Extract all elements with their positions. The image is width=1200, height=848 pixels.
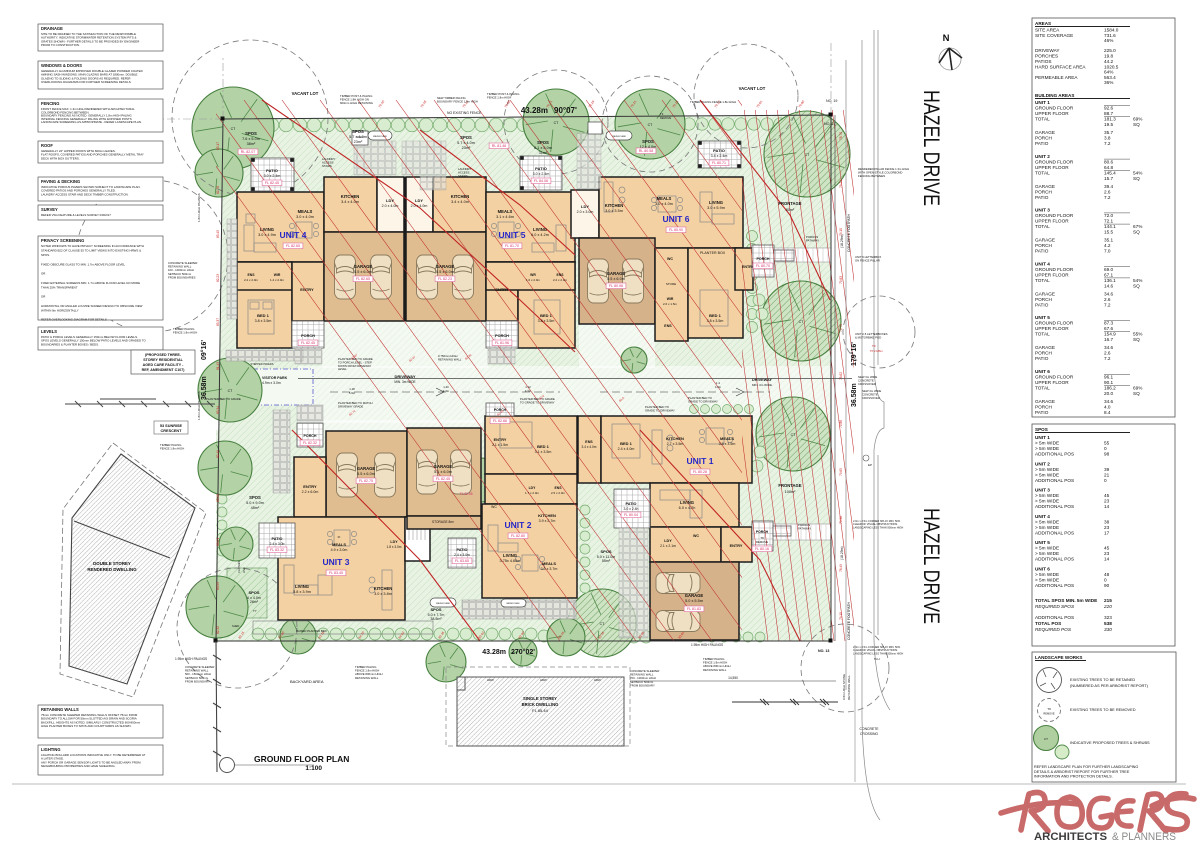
svg-text:ENS: ENS	[557, 273, 565, 277]
svg-text:FROM BOUNDARIES: FROM BOUNDARIES	[168, 275, 196, 279]
svg-text:14.6: 14.6	[1104, 283, 1114, 288]
svg-text:GARAGE: GARAGE	[357, 466, 376, 471]
svg-text:UNIT 5: UNIT 5	[499, 230, 526, 240]
svg-text:54%: 54%	[1133, 278, 1142, 283]
svg-text:215: 215	[1104, 598, 1112, 603]
svg-text:1.4 x 2.0m: 1.4 x 2.0m	[270, 278, 285, 282]
svg-text:FL 81.96: FL 81.96	[495, 341, 509, 345]
svg-text:3.8 x 3.5m: 3.8 x 3.5m	[707, 319, 724, 323]
svg-text:GROUND FLOOR PLAN: GROUND FLOOR PLAN	[254, 754, 349, 764]
svg-text:PATIO: PATIO	[1035, 410, 1049, 415]
svg-text:STAIRS: STAIRS	[458, 174, 468, 178]
svg-text:TOTAL: TOTAL	[1035, 386, 1050, 391]
svg-text:NO EXISTING FENCE: NO EXISTING FENCE	[447, 111, 482, 115]
svg-text:FRONTAGE: FRONTAGE	[778, 201, 801, 206]
svg-text:DRIVEWAY GRADE: DRIVEWAY GRADE	[338, 404, 363, 408]
svg-text:220: 220	[1103, 604, 1112, 609]
svg-text:UPPER FLOOR: UPPER FLOOR	[1035, 111, 1069, 116]
svg-text:UPPER FLOOR: UPPER FLOOR	[1035, 272, 1069, 277]
svg-text:HRW: HRW	[540, 678, 547, 682]
svg-text:WATER TANK: WATER TANK	[612, 135, 626, 138]
svg-text:79.65: 79.65	[839, 468, 843, 476]
svg-text:UNIT 5: UNIT 5	[1035, 540, 1050, 545]
svg-text:STORE: STORE	[666, 282, 676, 286]
svg-text:39.4: 39.4	[1104, 184, 1114, 189]
svg-text:HRW: HRW	[487, 678, 494, 682]
svg-text:92.6: 92.6	[1104, 106, 1114, 111]
svg-text:3.0 x 3.7m: 3.0 x 3.7m	[541, 567, 558, 571]
svg-text:(NUMBERED AS PER ARBORIST REPO: (NUMBERED AS PER ARBORIST REPORT)	[1070, 683, 1149, 688]
svg-text:PATIO: PATIO	[1035, 141, 1049, 146]
svg-text:69%: 69%	[1133, 117, 1142, 122]
svg-text:1.7 x 2.0m: 1.7 x 2.0m	[525, 491, 540, 495]
svg-text:ENTRY: ENTRY	[495, 287, 509, 292]
svg-text:BUILDING AREAS: BUILDING AREAS	[1035, 93, 1074, 98]
svg-text:19.5: 19.5	[1104, 122, 1114, 127]
svg-text:SINGLE STOREY: SINGLE STOREY	[523, 696, 557, 701]
svg-text:NO. 13: NO. 13	[818, 649, 829, 653]
svg-text:N: N	[943, 33, 950, 44]
svg-text:GROUND FLOOR: GROUND FLOOR	[1035, 321, 1074, 326]
svg-text:SITE AREA: SITE AREA	[1035, 28, 1060, 33]
svg-text:4.3m: 4.3m	[525, 389, 532, 393]
svg-text:PATIOS: PATIOS	[1035, 59, 1052, 64]
svg-text:FENCING BETWEEN: FENCING BETWEEN	[858, 174, 885, 178]
svg-text:SPOS: SPOS	[642, 139, 654, 144]
svg-text:PATIO: PATIO	[1035, 302, 1049, 307]
svg-text:ARCHITECTS: ARCHITECTS	[1034, 831, 1107, 843]
svg-text:GARAGE: GARAGE	[434, 464, 453, 469]
svg-text:ADDITIONAL POS: ADDITIONAL POS	[1035, 530, 1074, 535]
svg-text:NO. 17: NO. 17	[824, 122, 835, 126]
svg-text:GROUND FLOOR: GROUND FLOOR	[1035, 213, 1074, 218]
svg-text:MEALS: MEALS	[332, 542, 346, 547]
svg-text:81.43: 81.43	[216, 362, 220, 370]
svg-text:> 5m WIDE: > 5m WIDE	[1035, 572, 1059, 577]
svg-text:HIGH PLANTER BOXES TO SPOS AND: HIGH PLANTER BOXES TO SPOS AND COURTYARD…	[41, 724, 132, 728]
svg-text:1.8 x 3.0m: 1.8 x 3.0m	[387, 545, 402, 549]
svg-text:23: 23	[1104, 525, 1110, 530]
svg-text:FL 82.65: FL 82.65	[286, 244, 300, 248]
svg-text:PATIO: PATIO	[271, 537, 282, 541]
svg-text:38m²: 38m²	[247, 142, 256, 146]
svg-text:THAN 25% TRANSPARENT: THAN 25% TRANSPARENT	[41, 285, 78, 289]
svg-text:LDY: LDY	[529, 486, 537, 490]
svg-text:GARAGE: GARAGE	[1035, 291, 1055, 296]
svg-text:HARD SURFACE AREA: HARD SURFACE AREA	[1035, 65, 1086, 70]
svg-text:GROUND FLOOR: GROUND FLOOR	[1035, 375, 1074, 380]
svg-text:SPOS: SPOS	[248, 590, 259, 595]
svg-text:98: 98	[1104, 452, 1110, 457]
svg-text:> 5m WIDE: > 5m WIDE	[1035, 446, 1059, 451]
svg-text:LINE: LINE	[242, 567, 246, 573]
svg-text:CLOTHES: CLOTHES	[237, 560, 241, 573]
svg-text:GARAGE: GARAGE	[1035, 130, 1055, 135]
svg-text:FRONTAGE: FRONTAGE	[778, 483, 801, 488]
svg-text:RL 82.07: RL 82.07	[241, 150, 255, 154]
svg-text:VACANT LOT: VACANT LOT	[292, 91, 319, 96]
svg-text:REQUIRED SPOS: REQUIRED SPOS	[1035, 604, 1075, 609]
svg-text:BED 1: BED 1	[540, 313, 553, 318]
svg-text:PORCH: PORCH	[301, 334, 315, 338]
svg-text:MEALS: MEALS	[498, 209, 513, 214]
svg-text:FL 81.83: FL 81.83	[687, 607, 701, 611]
svg-text:SPOS: SPOS	[352, 129, 364, 134]
svg-text:SURVEY: SURVEY	[41, 207, 58, 212]
svg-text:KITCHEN: KITCHEN	[666, 436, 684, 441]
svg-text:79.30: 79.30	[839, 516, 843, 524]
svg-text:OR: OR	[41, 272, 45, 276]
svg-text:6.1 x 5.0m: 6.1 x 5.0m	[534, 146, 552, 150]
svg-text:SQ: SQ	[1133, 122, 1140, 127]
svg-text:55m²: 55m²	[602, 559, 611, 563]
svg-text:14,550: 14,550	[728, 676, 738, 680]
svg-text:UNIT 2: UNIT 2	[1035, 461, 1050, 466]
svg-text:79.15: 79.15	[839, 612, 843, 620]
svg-text:4.3m: 4.3m	[443, 389, 450, 393]
svg-text:LEVELS: LEVELS	[41, 329, 57, 334]
svg-text:5.0 x 9.0m: 5.0 x 9.0m	[246, 501, 264, 505]
svg-text:79.21: 79.21	[839, 180, 843, 188]
svg-text:DETAILS & ARBORIST REPORT FOR: DETAILS & ARBORIST REPORT FOR FURTHER TR…	[1034, 770, 1130, 774]
svg-text:15.5: 15.5	[1104, 230, 1114, 235]
svg-text:UNIT 5: UNIT 5	[1035, 315, 1050, 320]
svg-text:ENTRY: ENTRY	[303, 484, 317, 489]
svg-text:5.9m: 5.9m	[349, 391, 356, 395]
svg-text:2.1 x 2.1m: 2.1 x 2.1m	[660, 544, 676, 548]
svg-text:RAISED PLANTER BED: RAISED PLANTER BED	[296, 629, 327, 633]
svg-text:2.4 x 4.0m: 2.4 x 4.0m	[618, 447, 635, 451]
svg-text:GARAGE: GARAGE	[436, 264, 455, 269]
svg-text:UNIT 3: UNIT 3	[1035, 208, 1050, 213]
svg-text:> 5m WIDE: > 5m WIDE	[1035, 551, 1059, 556]
svg-text:REMOVE: REMOVE	[756, 540, 768, 544]
svg-text:INFORMATION AND PROTECTION DET: INFORMATION AND PROTECTION DETAILS.	[1034, 775, 1113, 779]
svg-text:83.34: 83.34	[216, 406, 220, 414]
svg-text:1.8m HIGH PALINGS: 1.8m HIGH PALINGS	[197, 193, 201, 222]
svg-text:53 SUNRISE: 53 SUNRISE	[160, 424, 183, 428]
svg-text:SHED: SHED	[232, 624, 239, 628]
svg-text:TOTAL: TOTAL	[1035, 332, 1050, 337]
svg-text:SQ: SQ	[1133, 391, 1140, 396]
svg-text:2.4 x 3.0b: 2.4 x 3.0b	[270, 542, 285, 546]
svg-text:PRIVACY SCREENING: PRIVACY SCREENING	[41, 238, 84, 243]
svg-text:3.4 x 2.4m: 3.4 x 2.4m	[711, 154, 728, 158]
svg-text:PORCH: PORCH	[1035, 136, 1052, 141]
svg-text:LDY: LDY	[581, 204, 589, 209]
svg-text:FIXED OBSCURE GLASS TO MIN. 1.: FIXED OBSCURE GLASS TO MIN. 1.7m ABOVE F…	[41, 262, 125, 266]
svg-text:ENS: ENS	[555, 486, 563, 490]
svg-text:UNIT 4: UNIT 4	[1035, 514, 1050, 519]
svg-text:55%: 55%	[1133, 332, 1142, 337]
svg-text:31m²: 31m²	[539, 151, 548, 155]
svg-text:67%: 67%	[1133, 224, 1142, 229]
svg-text:4.0: 4.0	[1104, 405, 1111, 410]
svg-text:72.0: 72.0	[1104, 213, 1114, 218]
svg-text:LDY: LDY	[386, 198, 394, 203]
svg-text:FL 80.04: FL 80.04	[624, 513, 638, 517]
svg-text:67.1: 67.1	[1104, 272, 1114, 277]
svg-text:83.90: 83.90	[216, 494, 220, 502]
svg-text:PORCH: PORCH	[1035, 351, 1052, 356]
svg-text:48: 48	[1104, 572, 1110, 577]
svg-text:ADDITIONAL POS: ADDITIONAL POS	[1035, 478, 1074, 483]
svg-text:WINDOWS & DOORS: WINDOWS & DOORS	[41, 63, 82, 68]
svg-text:83.37: 83.37	[216, 318, 220, 326]
svg-text:83.17: 83.17	[216, 142, 220, 150]
svg-text:BOUNDARY FENCE 1.8m HIGH: BOUNDARY FENCE 1.8m HIGH	[437, 99, 478, 103]
svg-text:LDY: LDY	[390, 540, 398, 544]
svg-text:2.0 x 4.0m: 2.0 x 4.0m	[382, 204, 399, 208]
svg-text:KITCHEN: KITCHEN	[341, 194, 360, 199]
svg-text:36.58m: 36.58m	[851, 383, 858, 407]
svg-text:BED 1: BED 1	[537, 444, 550, 449]
svg-text:PATIO: PATIO	[456, 548, 467, 552]
svg-text:SQ: SQ	[1133, 176, 1140, 181]
svg-text:CROSSOVER: CROSSOVER	[862, 396, 880, 400]
svg-text:2.6: 2.6	[1104, 351, 1111, 356]
svg-text:19.8: 19.8	[1104, 54, 1114, 59]
svg-text:PORCH: PORCH	[756, 530, 769, 534]
svg-text:AREAS: AREAS	[1035, 21, 1051, 26]
svg-text:CT: CT	[1044, 737, 1048, 741]
svg-text:5.5 x 6.0m: 5.5 x 6.0m	[354, 270, 372, 274]
svg-text:2.6 x 1.5m: 2.6 x 1.5m	[663, 302, 678, 306]
svg-text:55: 55	[1104, 441, 1110, 446]
svg-text:5.5 x 6.0m: 5.5 x 6.0m	[357, 472, 375, 476]
svg-text:4.2: 4.2	[1104, 243, 1111, 248]
svg-text:ENTRY: ENTRY	[494, 438, 507, 442]
svg-text:2.6: 2.6	[1104, 297, 1111, 302]
svg-text:2.7 x 3.5m: 2.7 x 3.5m	[667, 442, 684, 446]
svg-text:82.32: 82.32	[216, 626, 220, 634]
svg-text:FL 80.71: FL 80.71	[712, 161, 726, 165]
svg-text:TOTAL SPOS MIN. 5m WIDE: TOTAL SPOS MIN. 5m WIDE	[1035, 598, 1097, 603]
svg-text:> 5m WIDE: > 5m WIDE	[1035, 467, 1059, 472]
svg-text:2.0 x 3.0m: 2.0 x 3.0m	[577, 210, 594, 214]
svg-text:RL 81.46: RL 81.46	[492, 144, 506, 148]
svg-text:BED 1: BED 1	[257, 313, 270, 318]
svg-text:(18.29m): (18.29m)	[840, 234, 844, 248]
svg-text:WC: WC	[491, 505, 497, 509]
svg-text:NOTED WINDOWS TO HAVE PRIVACY: NOTED WINDOWS TO HAVE PRIVACY SCREENING …	[41, 244, 144, 248]
svg-text:3.75x 4.65m: 3.75x 4.65m	[500, 559, 521, 563]
svg-text:3.0 x 5.9m: 3.0 x 5.9m	[707, 206, 725, 210]
svg-text:KITCHEN: KITCHEN	[605, 203, 624, 208]
svg-text:FIXED EXTERNAL SCREENS MIN.: FIXED EXTERNAL SCREENS MIN. 1.7m ABOVE F…	[41, 281, 140, 285]
svg-text:44.2: 44.2	[1104, 59, 1114, 64]
svg-text:UNIT 4: UNIT 4	[280, 230, 307, 240]
svg-text:5.1 x 6.0m: 5.1 x 6.0m	[434, 470, 452, 474]
svg-text:GARAGE: GARAGE	[1035, 184, 1055, 189]
svg-text:7.2: 7.2	[1104, 195, 1111, 200]
svg-text:REFER LANDSCAPE PLAN FOR FURTH: REFER LANDSCAPE PLAN FOR FURTHER LANDSCA…	[1034, 765, 1138, 769]
svg-text:UNIT 4: UNIT 4	[1035, 261, 1050, 266]
svg-text:KITCHEN: KITCHEN	[451, 194, 470, 199]
svg-text:GROUND FLOOR: GROUND FLOOR	[1035, 106, 1074, 111]
svg-text:TOTAL: TOTAL	[1035, 170, 1050, 175]
svg-text:1.8m HIGH PALINGS: 1.8m HIGH PALINGS	[197, 391, 201, 420]
svg-text:> 5m WIDE: > 5m WIDE	[1035, 519, 1059, 524]
svg-text:FENCE 1.8m HIGH: FENCE 1.8m HIGH	[487, 95, 511, 99]
svg-text:5.7 x 4.0m: 5.7 x 4.0m	[457, 141, 475, 145]
svg-text:WATER TANK: WATER TANK	[506, 602, 520, 605]
svg-text:UPPER FLOOR: UPPER FLOOR	[1035, 219, 1069, 224]
svg-text:> 5m WIDE: > 5m WIDE	[1035, 546, 1059, 551]
svg-text:FL 84.06: FL 84.06	[534, 179, 548, 183]
svg-text:144.1: 144.1	[1104, 224, 1116, 229]
svg-text:3.0 x 3.5m: 3.0 x 3.5m	[605, 209, 623, 213]
svg-text:3.0 x 4.0m: 3.0 x 4.0m	[655, 202, 673, 206]
svg-text:67.6: 67.6	[1104, 326, 1114, 331]
svg-text:3.0 x 2.4h: 3.0 x 2.4h	[624, 507, 639, 511]
svg-text:GARAGE: GARAGE	[607, 271, 626, 276]
svg-text:LDY: LDY	[415, 198, 423, 203]
svg-text:96.1: 96.1	[1104, 375, 1114, 380]
svg-text:UNIT 1: UNIT 1	[1035, 435, 1050, 440]
svg-text:14: 14	[1104, 504, 1110, 509]
svg-text:SITE COVERAGE: SITE COVERAGE	[1035, 33, 1073, 38]
svg-text:43.28m: 43.28m	[482, 649, 506, 656]
svg-text:3.9 x 2.7m: 3.9 x 2.7m	[539, 519, 556, 523]
svg-text:90.1: 90.1	[1104, 380, 1114, 385]
svg-text:RETAINING WALL: RETAINING WALL	[703, 668, 727, 672]
svg-text:ENS: ENS	[248, 273, 256, 277]
svg-text:SPOS: SPOS	[600, 549, 611, 554]
svg-text:82.49: 82.49	[216, 450, 220, 458]
svg-text:TOTAL: TOTAL	[1035, 278, 1050, 283]
svg-text:0: 0	[1104, 446, 1107, 451]
svg-text:UPPER FLOOR: UPPER FLOOR	[1035, 326, 1069, 331]
svg-text:REMOVE: REMOVE	[1043, 712, 1055, 716]
svg-text:3.1 x 4.6m: 3.1 x 4.6m	[496, 215, 514, 219]
svg-text:64%: 64%	[1104, 70, 1113, 75]
svg-text:WC: WC	[693, 534, 699, 538]
svg-text:T#: T#	[1047, 707, 1051, 711]
svg-text:HAZEL DRIVE: HAZEL DRIVE	[919, 508, 944, 624]
svg-text:REQUIRED POS: REQUIRED POS	[1035, 627, 1072, 632]
svg-text:1584.0: 1584.0	[1104, 28, 1119, 33]
svg-text:600mm HIGH RETAINING: 600mm HIGH RETAINING	[340, 101, 373, 105]
svg-text:3.8 x 3.5m: 3.8 x 3.5m	[255, 319, 272, 323]
svg-text:82.23: 82.23	[216, 274, 220, 282]
svg-text:FL 82.58: FL 82.58	[460, 492, 473, 496]
svg-text:UPPER FLOOR: UPPER FLOOR	[1035, 165, 1069, 170]
svg-text:7.2: 7.2	[1104, 356, 1111, 361]
svg-text:LANDSCAPING LESS THAN 900mm HI: LANDSCAPING LESS THAN 900mm HIGH	[853, 651, 903, 655]
svg-text:RETAINING WALL: RETAINING WALL	[438, 357, 462, 361]
svg-text:23: 23	[1104, 551, 1110, 556]
svg-text:WATER TANK: WATER TANK	[436, 602, 450, 605]
svg-text:78.49: 78.49	[839, 564, 843, 572]
svg-text:MEALS: MEALS	[298, 209, 313, 214]
svg-text:UPPER FLOOR: UPPER FLOOR	[1035, 380, 1069, 385]
svg-text:UNIT 2: UNIT 2	[505, 520, 532, 530]
svg-text:69%: 69%	[1133, 386, 1142, 391]
svg-text:38: 38	[1104, 519, 1110, 524]
svg-text:23: 23	[1104, 499, 1110, 504]
svg-text:FENCE 1.8m HIGH: FENCE 1.8m HIGH	[173, 331, 197, 335]
svg-text:38.5m²: 38.5m²	[430, 617, 442, 621]
svg-text:FL 82.45: FL 82.45	[436, 477, 450, 481]
svg-text:TOTAL POS: TOTAL POS	[1035, 621, 1061, 626]
svg-text:6.0 x 4.2m: 6.0 x 4.2m	[531, 233, 549, 237]
svg-text:BED 1: BED 1	[620, 441, 633, 446]
svg-text:PATHWAY: PATHWAY	[798, 526, 811, 530]
svg-text:35.7: 35.7	[1104, 130, 1114, 135]
svg-text:FL 82.75: FL 82.75	[359, 479, 373, 483]
svg-text:3.8 x 3.5m: 3.8 x 3.5m	[719, 442, 736, 446]
svg-text:LANDSCAPE SCREENING AS APPROPR: LANDSCAPE SCREENING AS APPROPRIATE - REF…	[41, 120, 142, 124]
svg-text:83.21: 83.21	[216, 538, 220, 546]
svg-text:23m²: 23m²	[354, 140, 363, 144]
svg-text:MIN. 3m WIDE: MIN. 3m WIDE	[752, 383, 772, 387]
svg-text:54%: 54%	[1133, 170, 1142, 175]
svg-text:15.7: 15.7	[1104, 176, 1114, 181]
svg-text:SPOS: SPOS	[249, 495, 261, 500]
svg-text:ROOF: ROOF	[41, 143, 53, 148]
svg-text:EXISTING TREES TO BE REMOVED: EXISTING TREES TO BE REMOVED	[1070, 707, 1136, 712]
svg-text:3.4 x 4.0m: 3.4 x 4.0m	[582, 445, 597, 449]
svg-text:UNIT 1: UNIT 1	[1035, 100, 1050, 105]
svg-text:3.8: 3.8	[1104, 136, 1111, 141]
svg-text:181.3: 181.3	[1104, 117, 1116, 122]
svg-text:WIR: WIR	[667, 297, 674, 301]
svg-text:FL 80.90: FL 80.90	[669, 228, 683, 232]
svg-text:PORCH: PORCH	[495, 334, 509, 338]
svg-text:FL 83.45: FL 83.45	[329, 571, 343, 575]
svg-text:T3: T3	[660, 112, 664, 116]
svg-text:34.6: 34.6	[1104, 291, 1114, 296]
svg-text:34.6: 34.6	[1104, 399, 1114, 404]
svg-text:SPOS: SPOS	[245, 131, 257, 136]
svg-text:LIVING: LIVING	[533, 227, 547, 232]
svg-text:> 5m WIDE: > 5m WIDE	[1035, 578, 1059, 583]
svg-text:PATIO: PATIO	[713, 148, 725, 153]
svg-text:3.0 x 2.4m: 3.0 x 2.4m	[533, 172, 550, 176]
svg-text:STEPPED PAVERS: STEPPED PAVERS	[251, 362, 274, 366]
svg-text:STAIRS: STAIRS	[322, 164, 332, 168]
svg-text:79.83: 79.83	[839, 276, 843, 284]
svg-text:BED 1: BED 1	[709, 313, 722, 318]
svg-text:FI: FI	[338, 535, 341, 539]
svg-text:09°16': 09°16'	[200, 340, 208, 360]
svg-text:TP 2.186m: TP 2.186m	[870, 349, 883, 353]
svg-text:LIGHTING: LIGHTING	[41, 747, 61, 752]
svg-text:2.4 x 3.0m: 2.4 x 3.0m	[454, 553, 470, 557]
svg-text:ENTRY: ENTRY	[730, 544, 743, 548]
svg-text:7.2: 7.2	[1104, 141, 1111, 146]
svg-text:90: 90	[1104, 583, 1110, 588]
svg-text:OVERLOOKING DIAGRAMS FOR FURTH: OVERLOOKING DIAGRAMS FOR FURTHER SCREENI…	[41, 80, 132, 84]
svg-text:LIVING: LIVING	[503, 553, 517, 558]
svg-text:PRIOR TO CONSTRUCTION.: PRIOR TO CONSTRUCTION.	[41, 43, 80, 47]
svg-text:> 5m WIDE: > 5m WIDE	[1035, 472, 1059, 477]
svg-text:PATIO: PATIO	[266, 168, 278, 173]
svg-text:TOTAL: TOTAL	[1035, 117, 1050, 122]
svg-text:UNIT 2: UNIT 2	[1035, 154, 1050, 159]
svg-text:GRADE TO DRIVEWAY: GRADE TO DRIVEWAY	[645, 408, 675, 412]
svg-text:SPOS.: SPOS.	[41, 253, 50, 257]
svg-text:PORCHES: PORCHES	[1035, 54, 1058, 59]
svg-text:EXISTING TREES TO BE RETAINED: EXISTING TREES TO BE RETAINED	[1070, 677, 1135, 682]
svg-text:16.7: 16.7	[1104, 337, 1114, 342]
svg-text:DOUBLE STOREY: DOUBLE STOREY	[93, 561, 131, 566]
svg-text:& MOTORBIKE POD: & MOTORBIKE POD	[855, 335, 881, 339]
svg-text:NO. 19: NO. 19	[826, 99, 837, 103]
svg-text:21: 21	[1104, 472, 1110, 477]
svg-text:MEALS: MEALS	[720, 436, 734, 441]
